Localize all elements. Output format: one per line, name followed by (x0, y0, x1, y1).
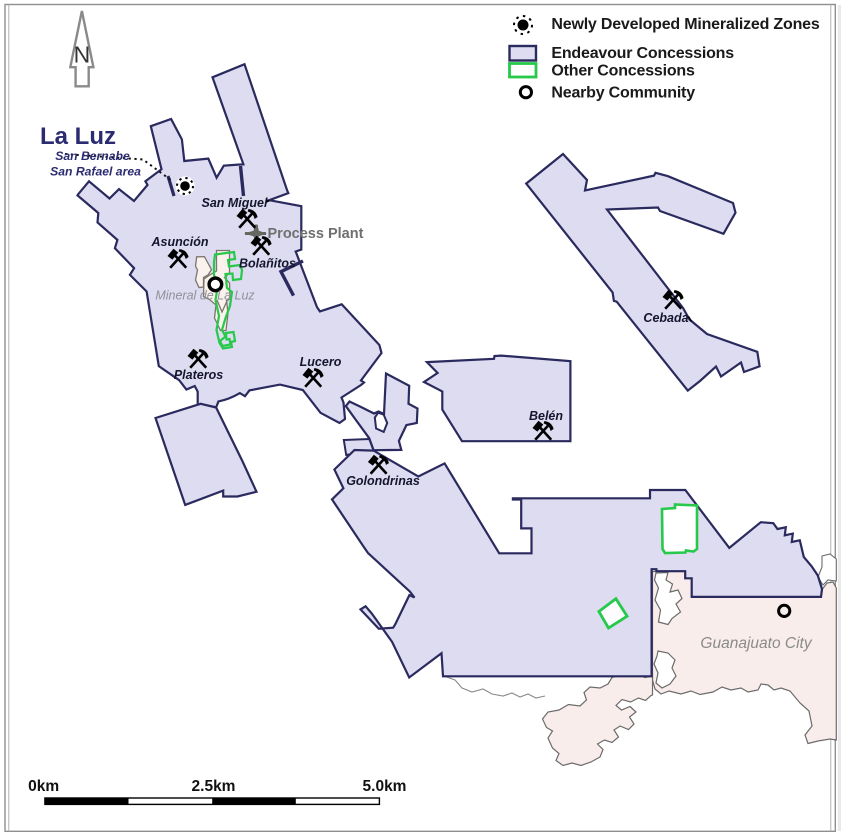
svg-text:San Rafael area: San Rafael area (50, 165, 141, 179)
svg-text:0km: 0km (28, 778, 59, 795)
svg-text:Nearby Community: Nearby Community (551, 85, 695, 102)
svg-text:Belén: Belén (529, 409, 563, 423)
svg-text:Lucero: Lucero (300, 355, 342, 369)
svg-text:San Miguel: San Miguel (202, 196, 269, 210)
svg-text:Plateros: Plateros (174, 368, 223, 382)
svg-text:Process Plant: Process Plant (268, 226, 364, 242)
svg-text:Newly Developed Mineralized Zo: Newly Developed Mineralized Zones (551, 16, 819, 33)
svg-text:Mineral de La Luz: Mineral de La Luz (155, 289, 255, 303)
svg-text:La Luz: La Luz (40, 123, 116, 150)
svg-text:Bolañitos: Bolañitos (239, 257, 296, 271)
svg-text:N: N (74, 42, 91, 68)
svg-text:Golondrinas: Golondrinas (346, 474, 420, 488)
svg-text:Other Concessions: Other Concessions (551, 63, 695, 80)
svg-text:Endeavour Concessions: Endeavour Concessions (551, 45, 734, 62)
svg-text:Guanajuato City: Guanajuato City (700, 635, 812, 652)
svg-text:Asunción: Asunción (151, 235, 209, 249)
svg-text:2.5km: 2.5km (192, 778, 236, 795)
svg-text:Cebada: Cebada (643, 311, 688, 325)
svg-text:5.0km: 5.0km (363, 778, 407, 795)
svg-text:San Bernabe: San Bernabe (55, 149, 130, 163)
